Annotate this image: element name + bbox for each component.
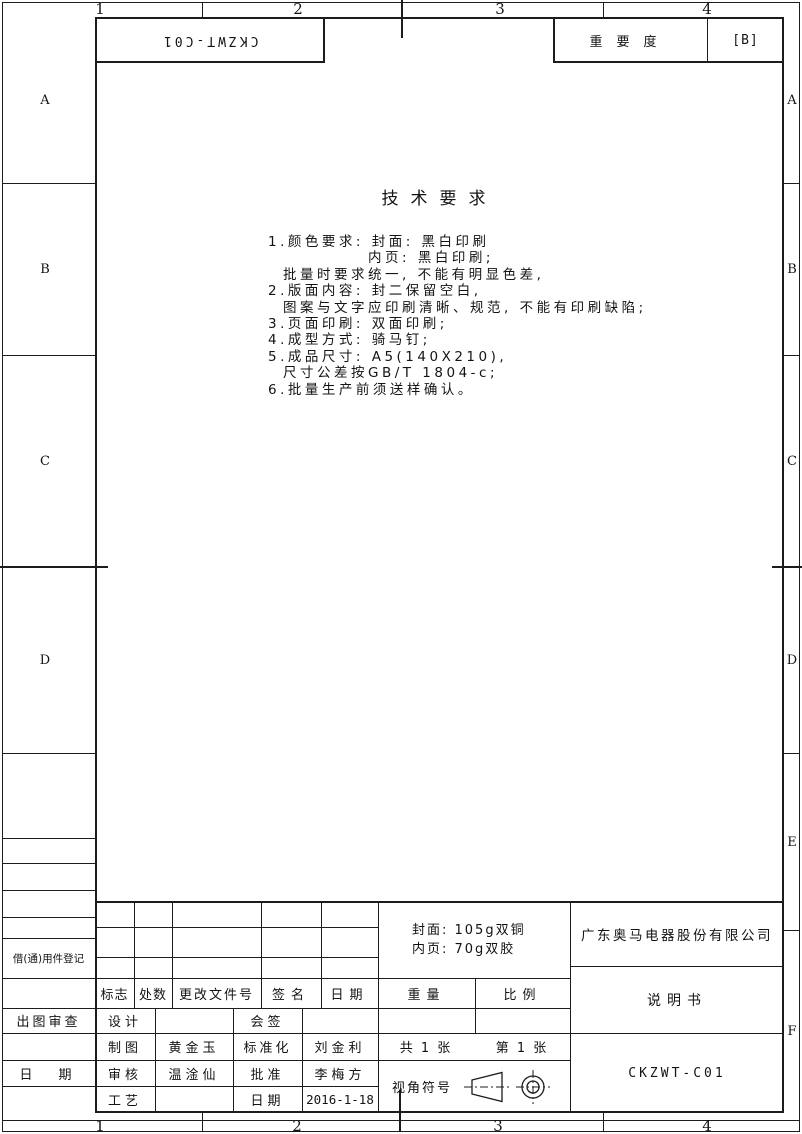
revision-signature-header: 签名 — [261, 978, 321, 1008]
tech-line: 尺寸公差按GB/T 1804-c; — [283, 365, 647, 381]
register-row-line — [2, 1086, 95, 1087]
zone-number-bottom: 2 — [287, 1119, 307, 1132]
centering-mark-right — [772, 566, 802, 568]
left-date-label: 日期 — [2, 1060, 105, 1086]
signature-date-label: 日期 — [233, 1086, 302, 1113]
view-symbol-label: 视角符号 — [392, 1077, 452, 1096]
zone-number-bottom: 4 — [697, 1119, 717, 1132]
zone-number-bottom: 3 — [488, 1119, 508, 1132]
standardize-label: 标准化 — [233, 1033, 302, 1060]
reversed-code-text: CKZWT-C01 — [95, 17, 325, 63]
zone-divider — [784, 355, 800, 356]
sheet-number: 第 1 张 — [496, 1037, 549, 1056]
zone-number-top: 1 — [90, 2, 110, 16]
tech-line: 6.批量生产前须送样确认。 — [268, 382, 647, 398]
zone-letter-left: D — [35, 652, 55, 668]
tech-requirements-body: 1.颜色要求: 封面: 黑白印刷 内页: 黑白印刷; 批量时要求统一, 不能有明… — [268, 234, 647, 398]
zone-letter-right: C — [782, 453, 802, 469]
view-symbol-row: 视角符号 — [378, 1060, 570, 1113]
draft-name: 黄金玉 — [155, 1033, 233, 1060]
material-cover: 封面: 105g双铜 — [412, 921, 570, 940]
revision-count-header: 处数 — [134, 978, 172, 1008]
design-label: 设计 — [95, 1008, 155, 1033]
register-row-line — [2, 1033, 95, 1034]
bottom-trim-line — [2, 1120, 800, 1121]
register-row-line — [2, 978, 95, 979]
zone-divider — [784, 753, 800, 754]
tech-line: 4.成型方式: 骑马钉; — [268, 332, 647, 348]
zone-divider — [2, 355, 95, 356]
check-name: 温淦仙 — [155, 1060, 233, 1086]
importance-label: 重要度 — [555, 17, 705, 63]
sheets-row: 共 1 张 第 1 张 — [378, 1033, 570, 1060]
zone-number-bottom: 1 — [90, 1119, 110, 1132]
zone-letter-left: B — [35, 261, 55, 277]
approve-label: 批准 — [233, 1060, 302, 1086]
zone-divider — [2, 753, 95, 754]
material-spec: 封面: 105g双铜 内页: 70g双胶 — [378, 902, 570, 978]
zone-divider — [784, 930, 800, 931]
weight-label: 重量 — [378, 978, 475, 1008]
register-row-line — [2, 917, 95, 918]
grid-line — [95, 927, 378, 928]
reversed-code-value: CKZWT-C01 — [161, 33, 258, 48]
zone-letter-right: E — [782, 834, 802, 850]
standardize-name: 刘金利 — [302, 1033, 378, 1060]
tech-requirements-title: 技术要求 — [95, 184, 784, 209]
company-name: 广东奥马电器股份有限公司 — [570, 902, 784, 966]
centering-mark-left — [0, 566, 108, 568]
zone-number-top: 3 — [490, 2, 510, 16]
zone-tick — [603, 2, 604, 17]
grid-line — [95, 957, 378, 958]
plot-review-label: 出图审查 — [2, 1008, 95, 1033]
tech-line: 内页: 黑白印刷; — [368, 250, 647, 266]
zone-letter-left: C — [35, 453, 55, 469]
outer-border-bottom — [2, 1131, 800, 1132]
zone-number-top: 2 — [288, 2, 308, 16]
scale-label: 比例 — [475, 978, 570, 1008]
drawing-sheet: 1 2 3 4 1 2 3 4 A B C D A B C D E F CKZW… — [0, 0, 802, 1134]
projection-symbol — [458, 1066, 562, 1108]
sheets-total: 共 1 张 — [400, 1037, 453, 1056]
grid-line — [95, 1008, 570, 1009]
register-row-line — [2, 863, 95, 864]
zone-tick — [202, 2, 203, 17]
zone-divider — [784, 183, 800, 184]
zone-divider — [2, 183, 95, 184]
revision-change-doc-header: 更改文件号 — [172, 978, 261, 1008]
material-inner: 内页: 70g双胶 — [412, 940, 570, 959]
revision-date-header: 日期 — [321, 978, 378, 1008]
tech-line: 图案与文字应印刷清晰、规范, 不能有印刷缺陷; — [283, 300, 647, 316]
tech-line: 批量时要求统一, 不能有明显色差, — [283, 267, 647, 283]
process-label: 工艺 — [95, 1086, 155, 1113]
borrow-register-label: 借(通)用件登记 — [2, 938, 95, 978]
tech-line: 1.颜色要求: 封面: 黑白印刷 — [268, 234, 647, 250]
countersign-label: 会签 — [233, 1008, 302, 1033]
document-title: 说明书 — [570, 966, 784, 1033]
approve-name: 李梅方 — [302, 1060, 378, 1086]
zone-tick — [603, 1113, 604, 1131]
zone-letter-right: A — [782, 92, 802, 108]
zone-letter-right: F — [782, 1023, 802, 1039]
register-row-line — [2, 838, 95, 839]
importance-value: [B] — [707, 17, 784, 63]
register-row-line — [2, 890, 95, 891]
signature-date-value: 2016-1-18 — [302, 1086, 378, 1113]
draft-label: 制图 — [95, 1033, 155, 1060]
document-number: CKZWT-C01 — [570, 1033, 784, 1113]
tech-line: 5.成品尺寸: A5(140X210), — [268, 349, 647, 365]
zone-letter-right: B — [782, 261, 802, 277]
zone-letter-left: A — [35, 92, 55, 108]
zone-tick — [202, 1113, 203, 1131]
zone-letter-right: D — [782, 652, 802, 668]
revision-mark-header: 标志 — [95, 978, 134, 1008]
centering-mark-top — [401, 0, 403, 38]
tech-line: 3.页面印刷: 双面印刷; — [268, 316, 647, 332]
tech-line: 2.版面内容: 封二保留空白, — [268, 283, 647, 299]
check-label: 审核 — [95, 1060, 155, 1086]
zone-number-top: 4 — [697, 2, 717, 16]
